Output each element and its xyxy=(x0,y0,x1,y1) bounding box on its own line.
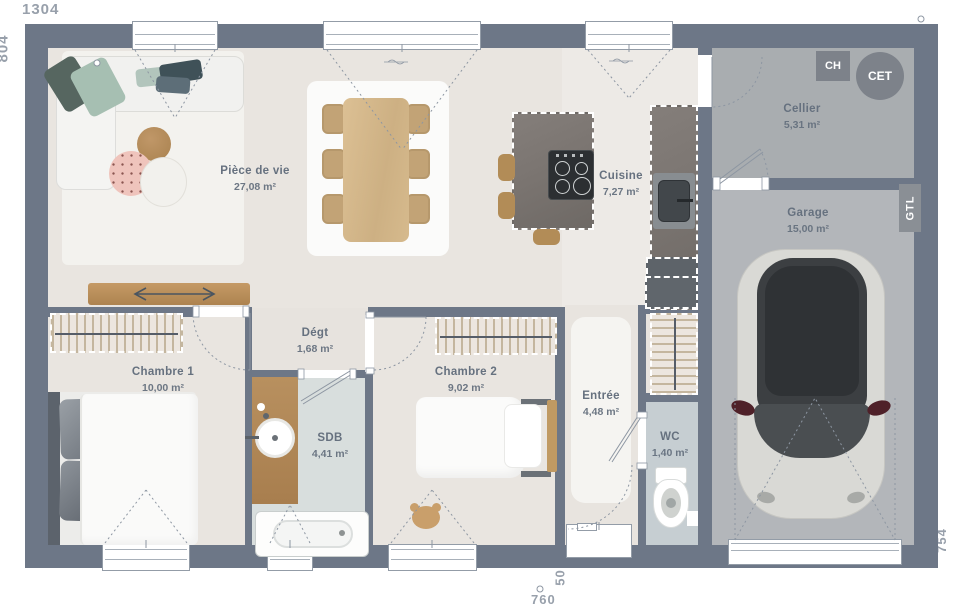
kitchen-stool xyxy=(533,229,560,245)
bed-duvet xyxy=(80,394,198,545)
toilet-bowl xyxy=(653,479,689,528)
dining-table xyxy=(343,98,409,242)
bathtub-drain xyxy=(339,530,345,536)
wall-garage-wing-lower xyxy=(698,107,712,568)
wall-entry-wc-lower xyxy=(638,466,646,545)
teddy-bear xyxy=(412,506,440,529)
cooktop xyxy=(548,150,594,200)
water-heater-cet-badge: CET xyxy=(856,52,904,100)
dining-chair xyxy=(406,104,430,134)
door-opening-bedroom1 xyxy=(197,307,245,317)
sink-faucet xyxy=(677,199,693,202)
sideboard xyxy=(88,283,250,305)
water-heater-ch-badge: CH xyxy=(816,51,850,81)
bed-single-pillow xyxy=(504,404,542,468)
window-kitchen xyxy=(585,21,673,50)
kitchen-stool xyxy=(498,154,515,181)
sofa-pillow-slate xyxy=(155,76,190,94)
dimension-entry-offset: 50 xyxy=(553,569,568,585)
bathroom-faucet xyxy=(245,436,259,439)
door-opening-cellier-garage xyxy=(716,178,768,190)
entry-rug xyxy=(571,317,631,503)
dimension-left: 804 xyxy=(0,34,12,62)
hallway-floor xyxy=(252,308,368,370)
burner xyxy=(555,179,570,194)
bed-double-headboard xyxy=(48,392,60,545)
floor-plan: 1304 804 754 544 760 50 CH CET xyxy=(0,0,960,612)
soap-dish xyxy=(257,403,265,411)
bathroom-sink xyxy=(255,418,295,458)
ch-label: CH xyxy=(825,60,841,72)
wall-bedroom2-top xyxy=(368,307,565,317)
wardrobe-bedroom1 xyxy=(50,313,183,353)
soap-pump xyxy=(263,413,269,419)
washing-machine xyxy=(645,276,698,309)
bed-single-frame-bottom xyxy=(521,471,551,477)
wall-entry-wc-upper xyxy=(638,305,646,417)
kitchen-sink-unit xyxy=(653,173,695,229)
front-door-sill xyxy=(577,523,597,531)
door-opening-bathroom xyxy=(302,370,352,378)
window-living-1 xyxy=(132,21,218,50)
wardrobe-bedroom2 xyxy=(435,317,557,355)
bed-single-headboard xyxy=(547,400,557,472)
electrical-gtl-badge: GTL xyxy=(899,184,921,232)
door-opening-wc xyxy=(638,417,646,466)
dining-chair xyxy=(406,194,430,224)
cooktop-controls xyxy=(556,154,586,157)
dimension-bottom: 760 xyxy=(531,592,556,607)
burner xyxy=(555,161,570,176)
entry-closet xyxy=(650,313,698,395)
door-opening-bedroom2 xyxy=(365,315,374,372)
window-living-2 xyxy=(323,21,481,50)
window-bedroom2 xyxy=(388,544,477,571)
burner xyxy=(573,177,591,195)
toilet-drain xyxy=(666,498,676,508)
dining-chair xyxy=(406,149,430,179)
sink-drain xyxy=(272,435,278,441)
window-bedroom1 xyxy=(102,544,190,571)
gtl-label: GTL xyxy=(904,196,916,221)
garage-door xyxy=(728,539,902,565)
kitchen-stool xyxy=(498,192,515,219)
wc-corner-shelf xyxy=(687,511,698,526)
wall-bedroom1-bathroom xyxy=(245,307,252,545)
door-opening-cellier xyxy=(698,55,712,107)
bathtub xyxy=(255,511,369,557)
burner xyxy=(575,162,588,175)
front-door xyxy=(566,524,632,558)
dimension-top: 1304 xyxy=(22,1,59,18)
wall-garage-wing-upper xyxy=(698,24,712,55)
cet-label: CET xyxy=(868,69,892,83)
wall-cellier-garage-right xyxy=(768,178,914,190)
car-sunroof xyxy=(765,266,859,396)
rug-white-round xyxy=(140,157,187,207)
